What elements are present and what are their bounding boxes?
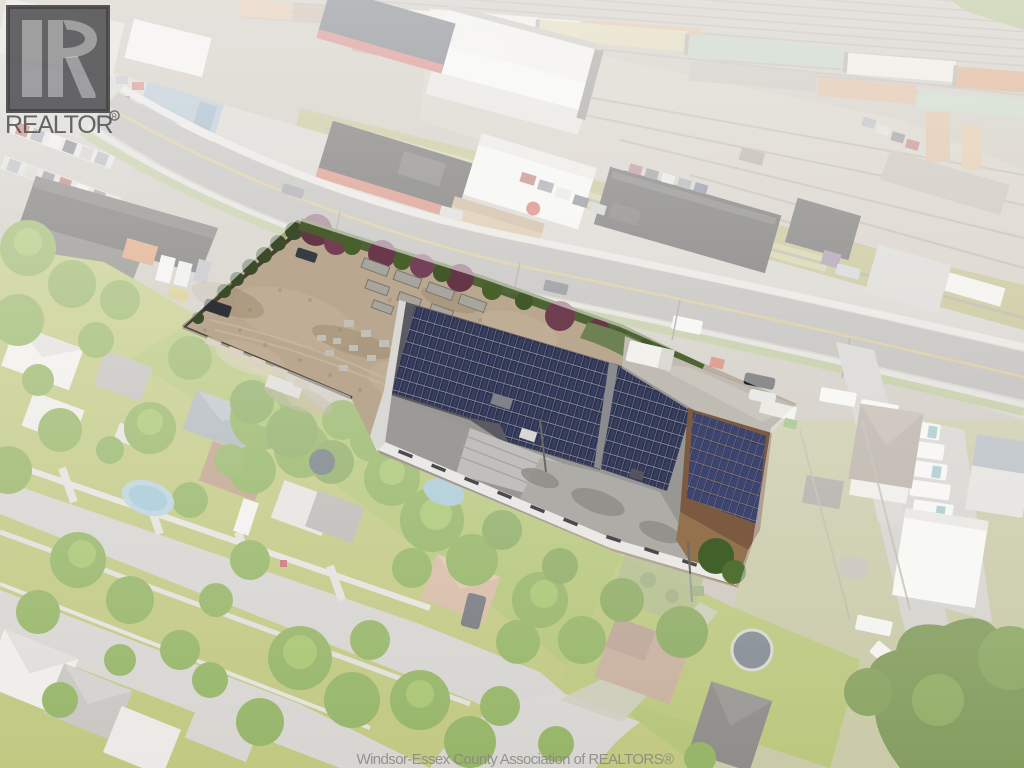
svg-text:REALTOR: REALTOR: [5, 111, 113, 139]
svg-text:Windsor-Essex County Associati: Windsor-Essex County Association of REAL…: [357, 751, 675, 768]
svg-text:R: R: [112, 114, 117, 121]
